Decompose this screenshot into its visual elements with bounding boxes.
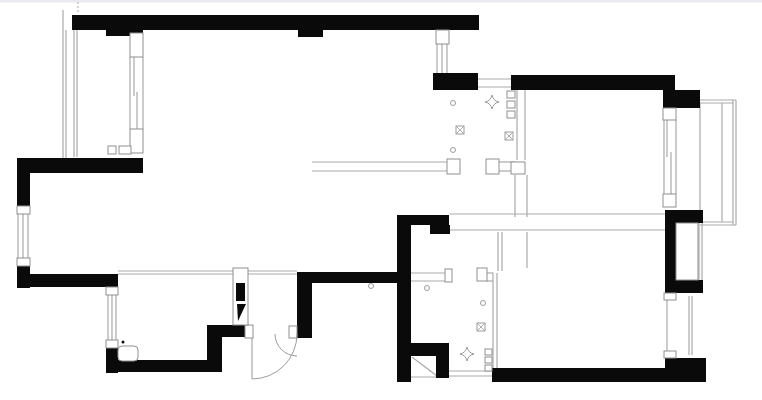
frame-casing (477, 268, 487, 281)
page-top-edge (0, 0, 762, 3)
wall-segment (665, 280, 703, 293)
frame-casing (486, 159, 499, 174)
frame-casing (511, 162, 525, 174)
frame-casing (289, 326, 297, 338)
frame-casing (130, 33, 143, 57)
frame-casing (17, 206, 30, 214)
wall-segment (17, 274, 117, 287)
frame-casing (676, 223, 698, 280)
frame-casing (106, 340, 118, 348)
wall-segment (397, 215, 411, 382)
light-icon (451, 101, 456, 106)
frame-casing (663, 194, 676, 207)
light-icon (451, 148, 456, 153)
wall-segment (511, 75, 675, 90)
wall-segment (72, 15, 479, 30)
frame-casing (507, 91, 515, 98)
vent-star-icon (485, 95, 499, 109)
frame-casing (447, 159, 460, 174)
marker-dot (122, 341, 125, 344)
frame-casing (106, 287, 118, 295)
frame-casing (485, 349, 492, 355)
wall-segment (433, 73, 478, 90)
frame-casing (17, 258, 30, 266)
frame-casing (436, 30, 449, 44)
light-icon (369, 284, 374, 289)
vent-star-icon (460, 347, 474, 361)
wall-segment (663, 90, 700, 108)
wall-segment (665, 210, 703, 223)
panel-box-mark (236, 283, 245, 301)
frame-casing (130, 129, 143, 153)
frame-casing (663, 108, 676, 120)
frame-casing (485, 365, 492, 371)
frame-casing (119, 146, 131, 154)
frame-casing (485, 357, 492, 363)
door-swing-arc (252, 334, 297, 379)
wall-segment (17, 158, 143, 173)
wall-segment (397, 343, 449, 356)
wall-segment (299, 272, 397, 283)
wall-segment (17, 158, 30, 212)
frame-casing (664, 351, 676, 358)
light-icon (425, 286, 430, 291)
wall-segment (298, 30, 323, 37)
frame-casing (245, 325, 253, 338)
light-icon (481, 301, 486, 306)
wall-segment (665, 358, 706, 382)
sink-fixture (118, 346, 138, 361)
frame-casing (108, 146, 116, 154)
frame-casing (507, 101, 515, 108)
floor-plan-drawing (0, 0, 762, 400)
frame-casing (445, 269, 452, 282)
thin-wall-line (412, 357, 437, 376)
frame-casing (507, 111, 515, 118)
frame-casing (664, 293, 676, 300)
wall-segment (106, 360, 222, 372)
wall-segment (207, 325, 247, 337)
wall-segment (436, 356, 449, 378)
wall-segment (397, 215, 449, 225)
floor-plan (0, 0, 762, 400)
wall-segment (430, 225, 450, 234)
